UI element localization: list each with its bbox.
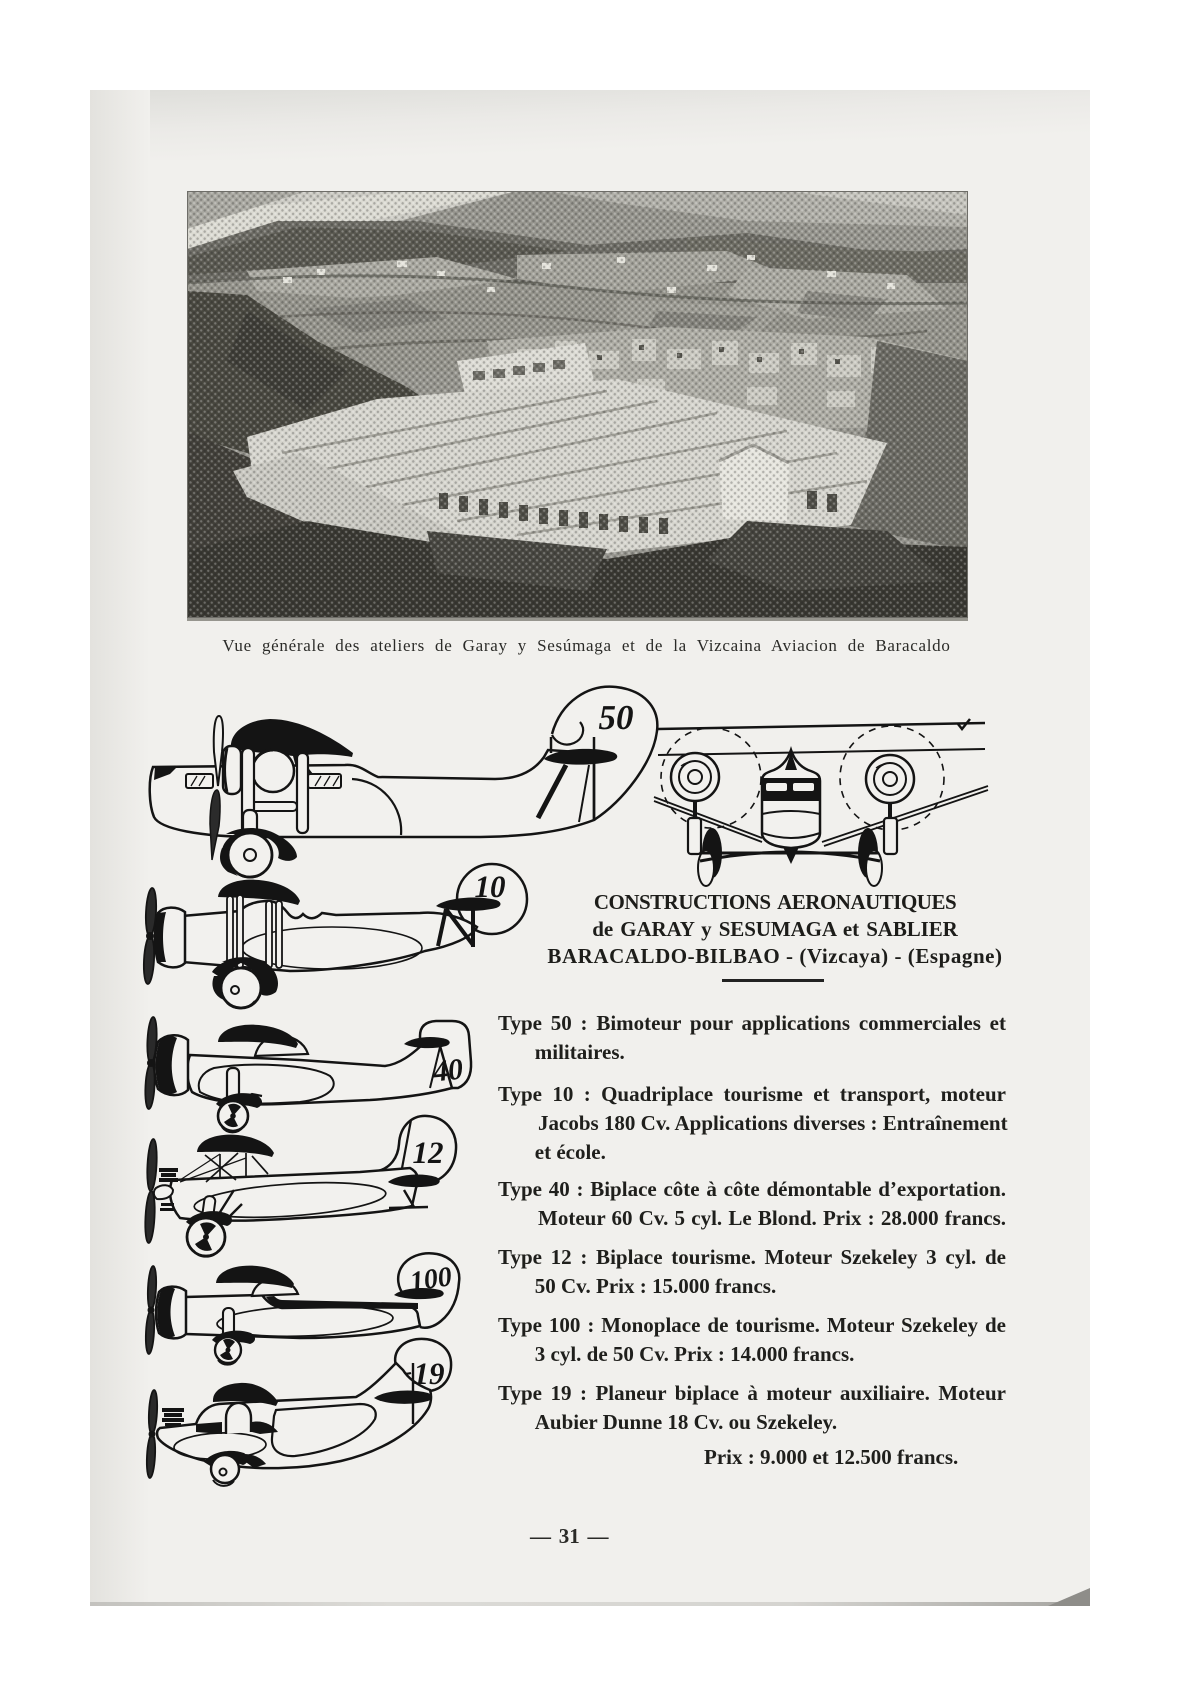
svg-text:19: 19: [414, 1356, 445, 1391]
svg-text:12: 12: [413, 1135, 444, 1170]
svg-text:40: 40: [430, 1053, 464, 1089]
svg-text:100: 100: [408, 1261, 454, 1298]
svg-text:50: 50: [599, 698, 634, 737]
svg-text:10: 10: [475, 869, 506, 904]
